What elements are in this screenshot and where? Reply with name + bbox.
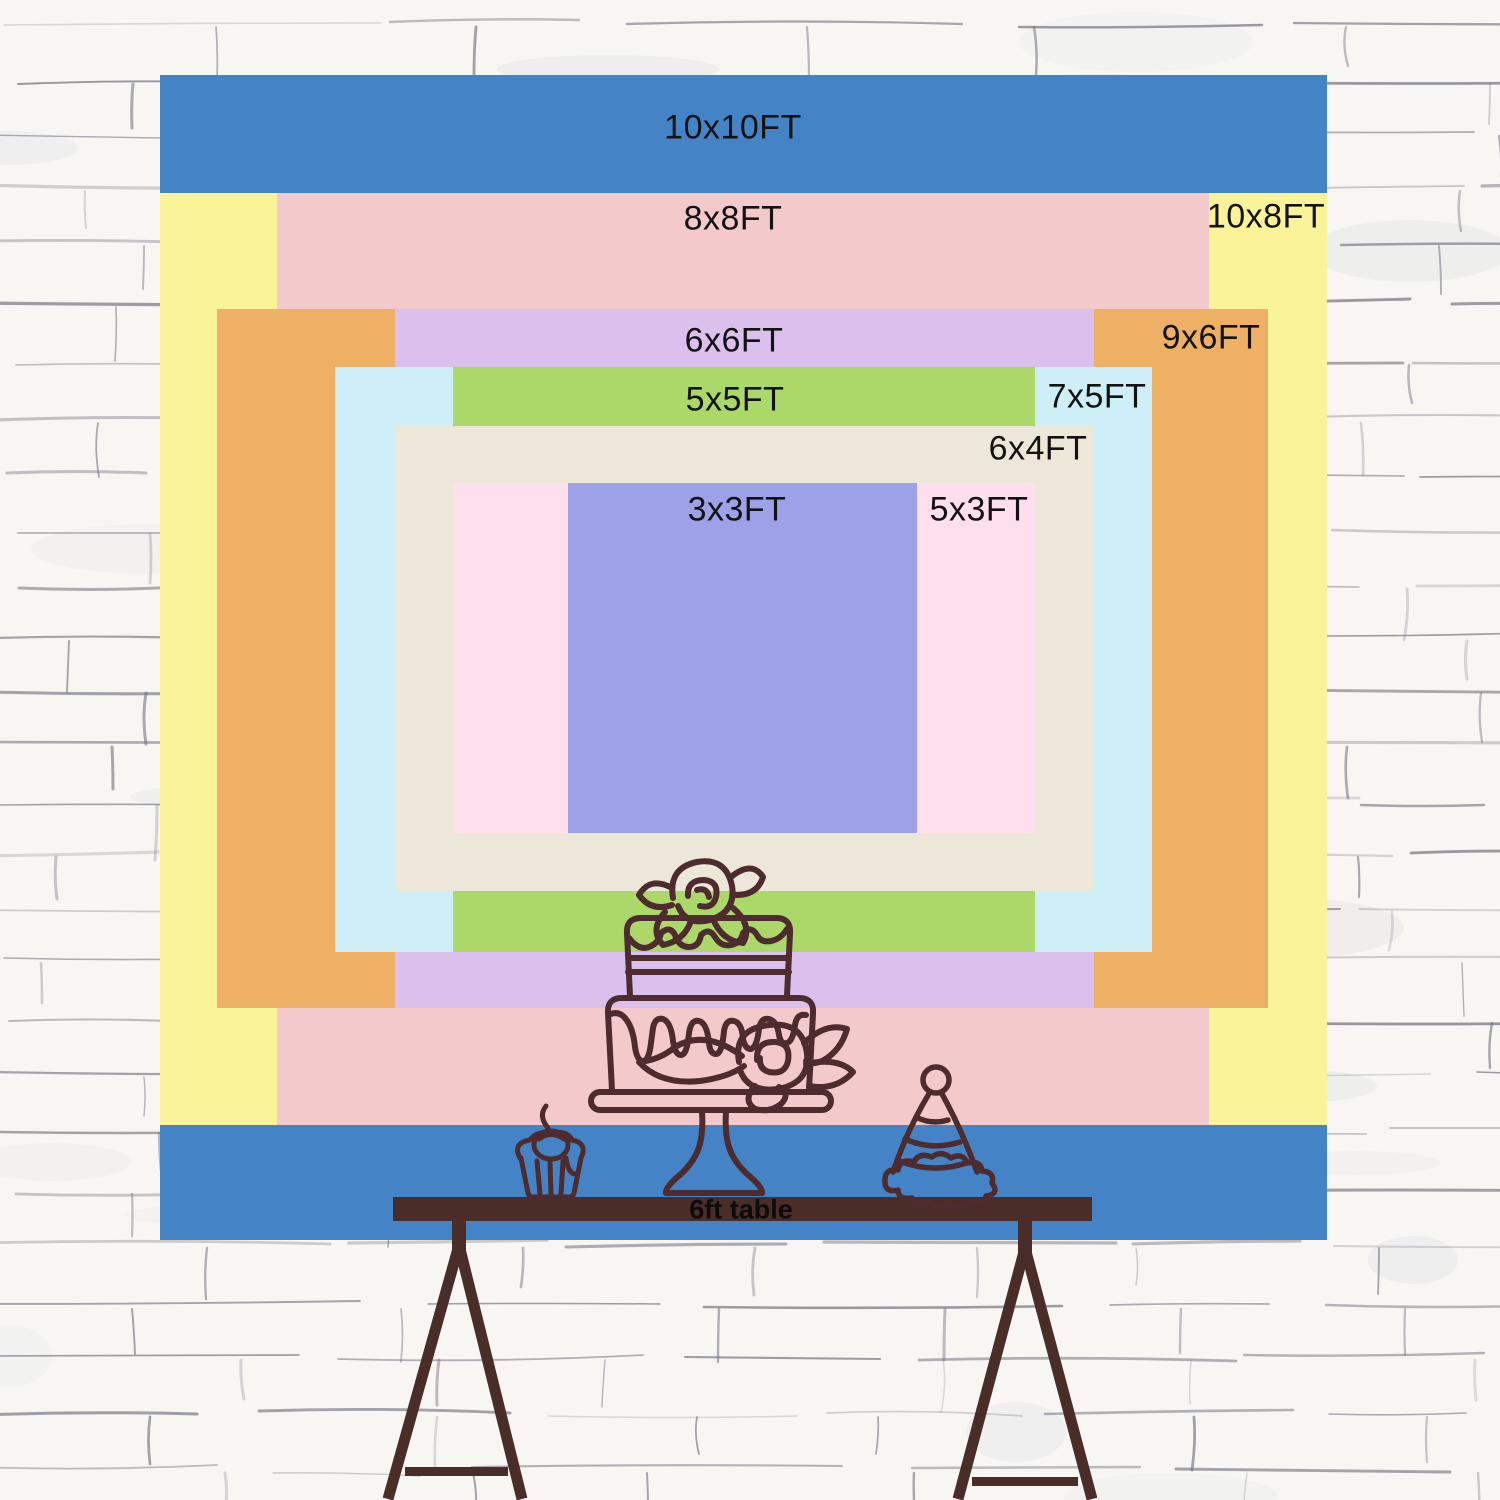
cupcake-icon xyxy=(518,1106,584,1197)
birthday-cake-icon xyxy=(591,861,853,1193)
trestle-table-icon xyxy=(388,1197,1092,1499)
table-label: 6ft table xyxy=(689,1195,793,1226)
party-hat-icon xyxy=(885,1067,995,1208)
illustration-overlay xyxy=(0,0,1500,1500)
